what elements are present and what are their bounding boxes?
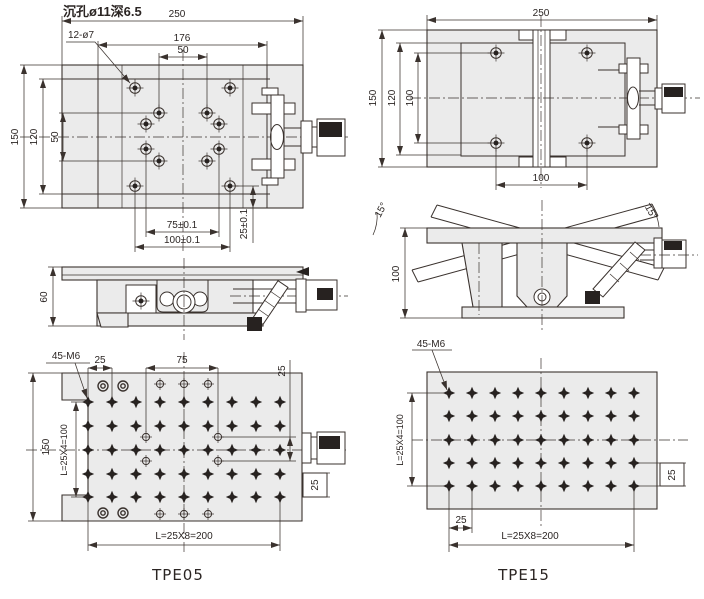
- tpe15-views: 250 150 120 100 100: [368, 8, 700, 584]
- micrometer-knob: [302, 432, 345, 464]
- tpe05-side-view: 60: [39, 258, 348, 340]
- tpe15-bottom-view: 45-M6 L=25X4=100 25 25 L=25X8=200: [395, 339, 688, 552]
- dim-100-label: 100: [405, 89, 416, 106]
- technical-drawing-canvas: 沉孔ø11深6.5: [0, 0, 704, 599]
- dim-150-label: 150: [368, 89, 379, 106]
- angle-right-label: 15°: [642, 203, 659, 222]
- dim-100-label: 100: [391, 265, 402, 282]
- tpe15-top-view: 250 150 120 100 100: [368, 8, 700, 190]
- product-label-tpe05: TPE05: [151, 566, 204, 584]
- thread-callout-label: 45-M6: [417, 339, 446, 350]
- dim-25-mid-label: 25: [277, 365, 288, 377]
- tpe05-top-view: 250 176 50 12-ø7 150 120 50 75±0.1 100±0…: [10, 9, 348, 252]
- dim-100-bottom-label: 100: [533, 173, 550, 184]
- stage-top-plate: [427, 228, 662, 243]
- dim-250-label: 250: [169, 9, 186, 20]
- stage-top-plate: [62, 267, 303, 280]
- dim-120-label: 120: [29, 128, 40, 145]
- tpe15-side-view: 15° 15° 100: [373, 200, 698, 332]
- hole-callout-label: 12-ø7: [68, 30, 95, 41]
- drive-knob-assembly: [585, 238, 698, 304]
- dim-250-label: 250: [533, 8, 550, 19]
- dim-50-left-label: 50: [50, 131, 61, 143]
- dim-60-label: 60: [39, 291, 50, 303]
- len-horiz-label: L=25X8=200: [155, 531, 213, 542]
- dim-176-label: 176: [174, 33, 191, 44]
- drawing-sheet: 沉孔ø11深6.5: [0, 0, 704, 599]
- dim-150-label: 150: [10, 128, 21, 145]
- dim-25-tol-label: 25±0.1: [239, 208, 250, 239]
- dim-25-right-label: 25: [310, 479, 321, 491]
- len-vert-label: L=25X4=100: [395, 414, 405, 466]
- product-label-tpe15: TPE15: [497, 566, 550, 584]
- dim-50-top-label: 50: [177, 45, 189, 56]
- tpe05-bottom-view: 45-M6 25 75 25 150 L=25X4=100 25 L=25X8=…: [26, 351, 348, 552]
- dim-100-tol-label: 100±0.1: [164, 235, 201, 246]
- pitch-25-label: 25: [94, 355, 106, 366]
- len-horiz-label: L=25X8=200: [501, 531, 559, 542]
- len-vert-label: L=25X4=100: [59, 424, 69, 476]
- dim-25-right-label: 25: [667, 469, 678, 481]
- dim-75-tol-label: 75±0.1: [167, 220, 198, 231]
- dim-150-label: 150: [41, 438, 52, 455]
- tpe05-views: 250 176 50 12-ø7 150 120 50 75±0.1 100±0…: [10, 9, 348, 584]
- pitch-25-label: 25: [455, 515, 467, 526]
- counterbore-note: 沉孔ø11深6.5: [63, 4, 142, 19]
- thread-callout-label: 45-M6: [52, 351, 81, 362]
- angle-left-label: 15°: [373, 201, 390, 220]
- dim-120-label: 120: [387, 89, 398, 106]
- dim-75-label: 75: [176, 355, 188, 366]
